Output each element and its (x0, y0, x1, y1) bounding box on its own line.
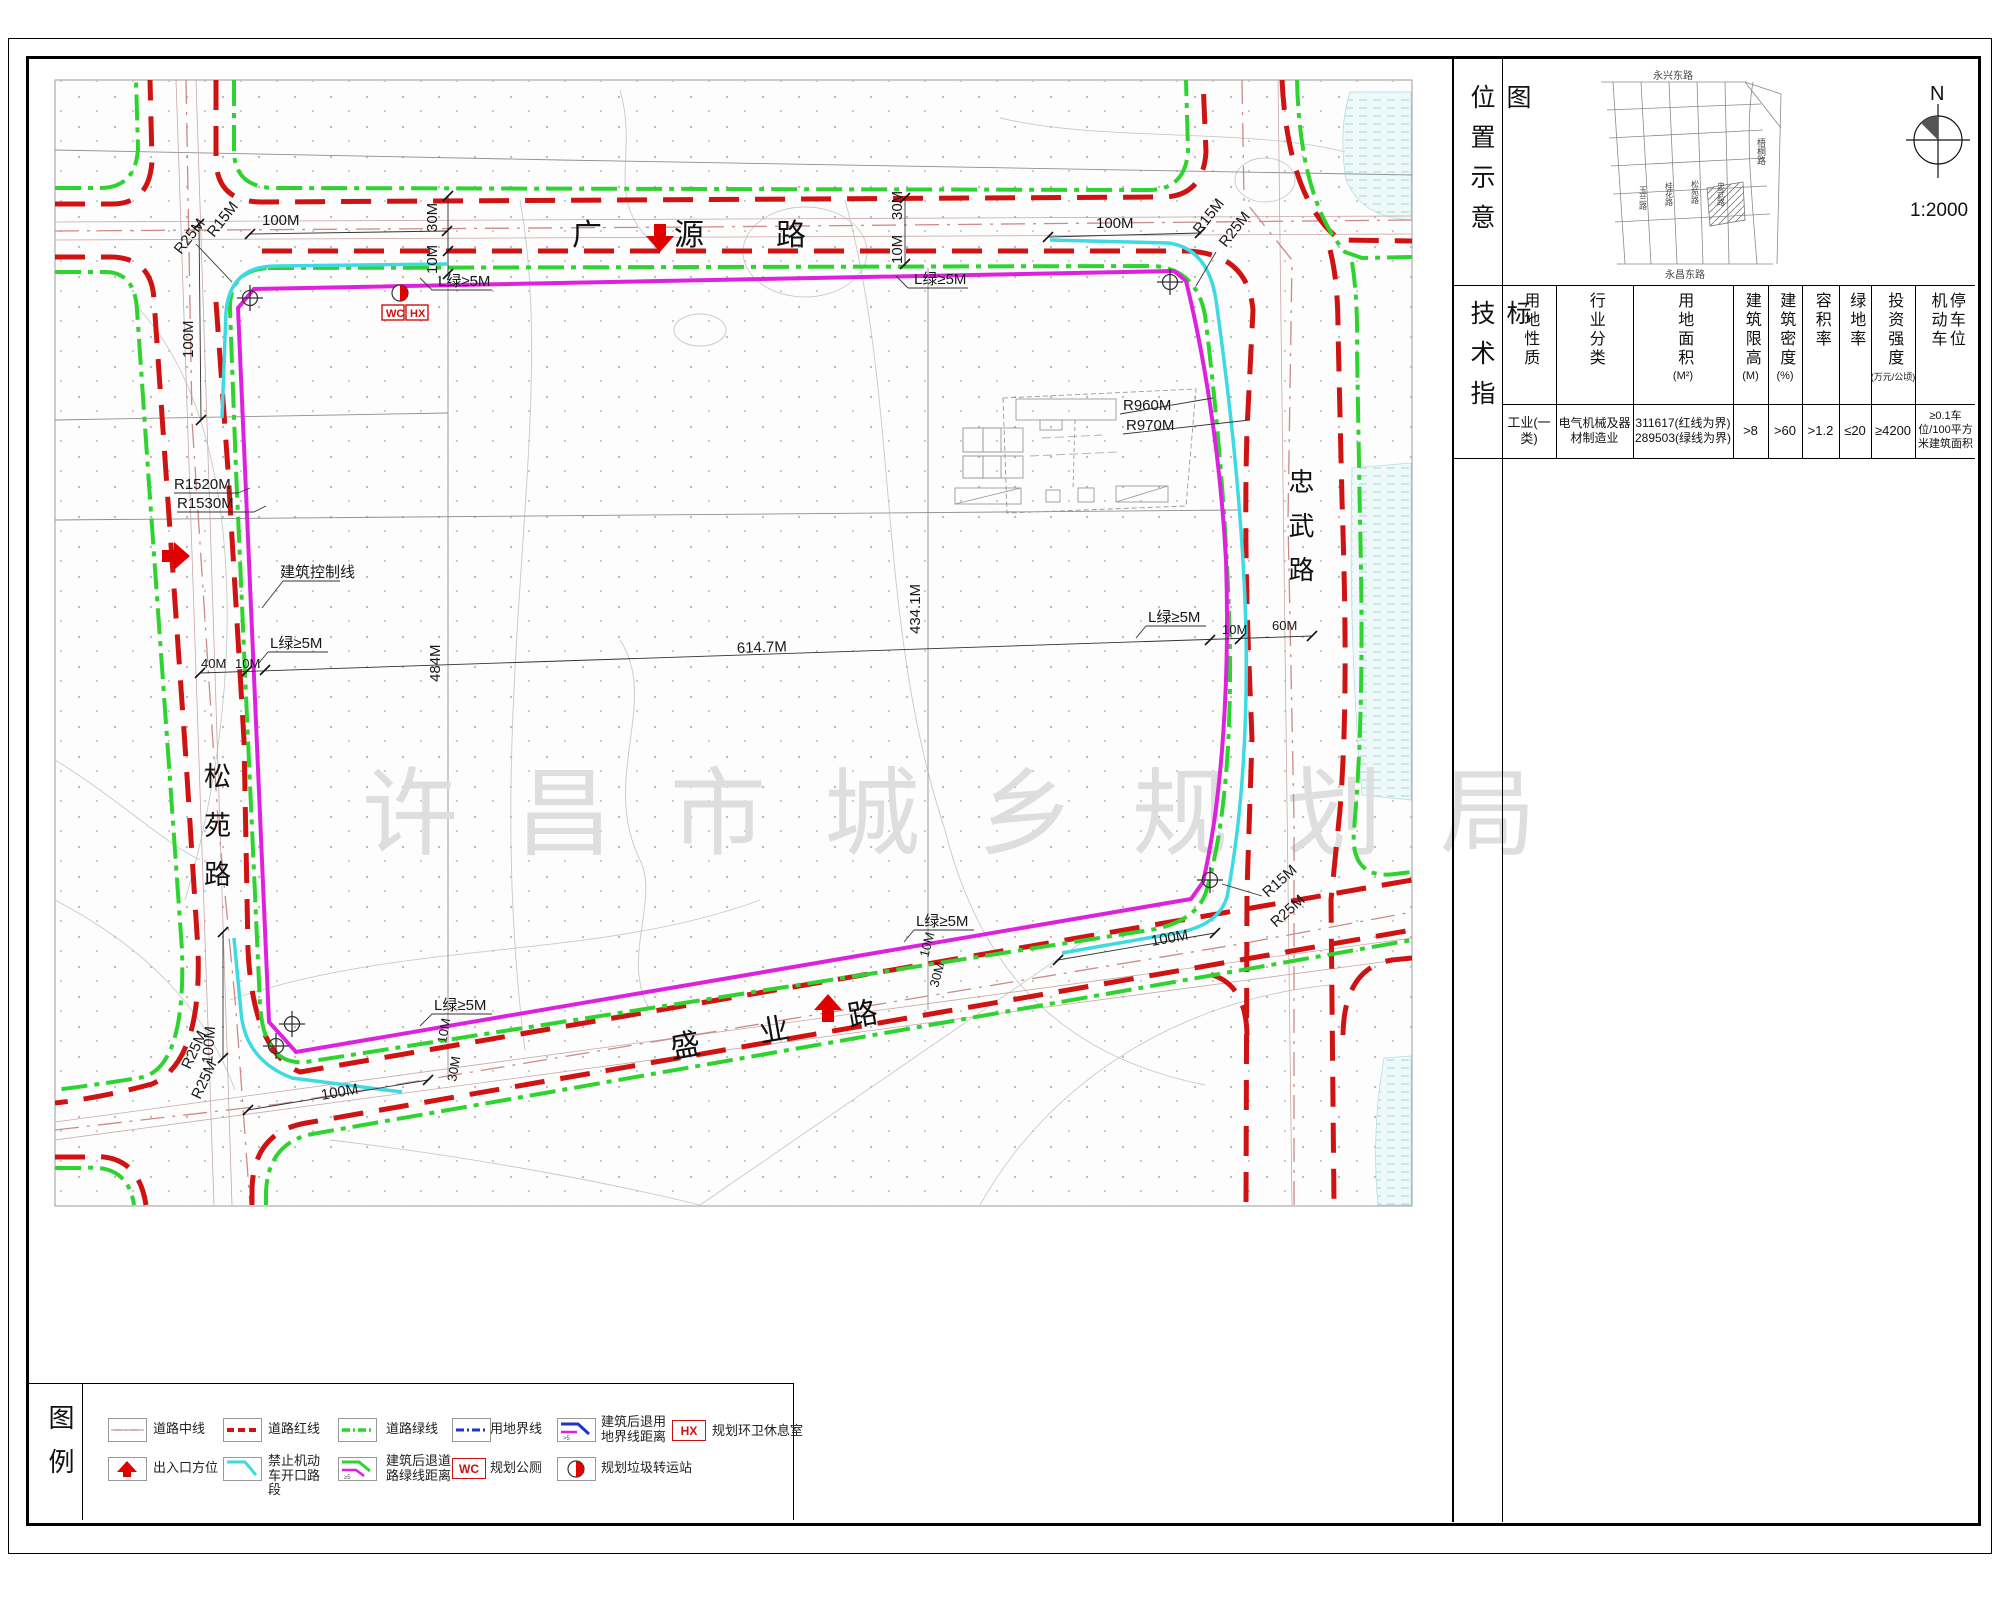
dim-label: R15M (204, 198, 242, 240)
th-height-limit: 建筑限高(M) (1734, 292, 1767, 402)
legend-item-label: 规划公厕 (490, 1461, 542, 1476)
dim-label: 10M (235, 656, 260, 671)
legend-right-border (793, 1383, 794, 1520)
legend-item-label: 出入口方位 (153, 1461, 218, 1476)
inset-road-label: 桂花路 (1665, 181, 1674, 206)
dim-label: L绿≥5M (916, 913, 968, 930)
td-height-limit: >8 (1734, 404, 1767, 458)
th-land-area: 用地面积(M²) (1634, 292, 1732, 402)
legend-item-label: 用地界线 (490, 1422, 542, 1437)
dim-label: L绿≥5M (434, 997, 486, 1014)
dim-label: R1520M (174, 476, 231, 493)
inset-road-label: 永昌东路 (1665, 268, 1705, 281)
legend-item-label: 道路绿线 (386, 1422, 438, 1437)
legend-top-border (26, 1383, 794, 1384)
dim-label: L绿≥5M (270, 635, 322, 652)
dim-label: 10M (889, 235, 906, 264)
th-industry: 行业分类 (1557, 292, 1632, 402)
plan-sheet: 许昌市城乡规划局 (0, 0, 2000, 1600)
land-boundary-icon (452, 1418, 491, 1442)
dim-label: 10M (1222, 622, 1247, 637)
north-compass: N 1:2000 (1902, 82, 1982, 232)
td-land-use: 工业(一类) (1503, 404, 1555, 458)
dim-label: L绿≥5M (438, 273, 490, 290)
legend-item-label: 规划环卫休息室 (712, 1424, 803, 1439)
wc-icon: WC (452, 1458, 486, 1479)
road-name-guangyuan: 广源路 (572, 210, 878, 254)
dim-label: L绿≥5M (1148, 609, 1200, 626)
entrance-arrow-icon (108, 1457, 147, 1481)
wc-text: WC (386, 308, 404, 320)
dim-label: 30M (424, 203, 441, 232)
panel-section-divider-2 (1452, 458, 1975, 459)
legend-item-label: 道路红线 (268, 1422, 320, 1437)
wc-hx-marks: WC HX (382, 285, 428, 320)
td-land-area: 311617(红线为界) 289503(绿线为界) (1634, 404, 1732, 458)
road-red-line-icon (223, 1418, 262, 1442)
inset-road-label: 梧桐路 (1756, 137, 1766, 166)
road-name-zhongwu: 忠武路 (1282, 468, 1319, 600)
dim-label: 60M (1272, 618, 1297, 633)
panel-left-border (1452, 56, 1454, 1522)
dim-label: 10M (916, 930, 937, 958)
dim-label: 10M (434, 1017, 453, 1045)
dim-label: 484M (427, 644, 444, 682)
dim-label: R970M (1126, 417, 1174, 434)
entrance-arrow-left (162, 542, 190, 570)
location-section-label: 位置示意图 (1463, 84, 1535, 274)
location-inset-map: 永兴东路 梧桐路 玉兰路 桂花路 松苑路 忠武路 永昌东路 (1595, 68, 1787, 283)
inset-road-label: 松苑路 (1691, 179, 1700, 204)
dim-label: 30M (889, 191, 906, 220)
td-density: >60 (1769, 404, 1801, 458)
no-opening-segments (222, 240, 1246, 1092)
td-investment: ≥4200 (1872, 404, 1914, 458)
th-investment: 投资强度(万元/公顷) (1872, 292, 1914, 402)
th-far: 容积率 (1803, 292, 1838, 402)
inset-parcel-hatch (1707, 182, 1745, 226)
dim-label: 10M (424, 245, 441, 274)
compass-quadrant (1921, 116, 1938, 140)
panel-label-divider (1502, 56, 1503, 1522)
dim-label: 30M (444, 1055, 463, 1083)
setback-from-boundary-icon: >5 (557, 1418, 596, 1442)
td-parking: ≥0.1车位/100平方米建筑面积 (1916, 402, 1975, 460)
legend-item-label: 规划垃圾转运站 (601, 1461, 692, 1476)
legend-item-label: 道路中线 (153, 1422, 205, 1437)
td-industry: 电气机械及器材制造业 (1557, 404, 1632, 458)
inset-road-label: 忠武路 (1717, 182, 1726, 206)
legend-title: 图例 (42, 1404, 79, 1504)
dim-label: 40M (201, 656, 226, 671)
dim-label: 100M (262, 212, 300, 229)
inset-road-label: 玉兰路 (1639, 186, 1648, 210)
dim-label: R1530M (177, 495, 234, 512)
dimension-labels: 100M 100M 100M R15M R25M 30M 10M L绿≥5M 3… (171, 191, 1309, 1104)
svg-text:>5: >5 (563, 1436, 571, 1441)
dim-label: 614.7M (737, 638, 788, 657)
dim-label: 100M (180, 320, 197, 358)
setback-from-greenline-icon: ≥5 (338, 1457, 377, 1481)
th-parking: 机动车停车位 (1916, 292, 1975, 402)
panel-section-divider-1 (1452, 285, 1975, 286)
svg-text:≥5: ≥5 (344, 1475, 351, 1480)
th-land-use: 用地性质 (1503, 292, 1555, 402)
no-opening-icon (223, 1457, 262, 1481)
inset-road-label: 永兴东路 (1653, 69, 1693, 82)
dim-label: 100M (1096, 215, 1134, 232)
road-green-line-icon (338, 1418, 377, 1442)
legend-item-label: 建筑后退道路绿线距离 (386, 1454, 452, 1483)
legend-label-divider (82, 1383, 83, 1520)
legend-item-label: 禁止机动车开口路段 (268, 1454, 332, 1498)
th-density: 建筑密度(%) (1769, 292, 1801, 402)
hx-text: HX (410, 308, 426, 320)
north-label: N (1930, 83, 1944, 105)
th-green-rate: 绿地率 (1840, 292, 1870, 402)
td-far: >1.2 (1803, 404, 1838, 458)
dim-label: 434.1M (907, 584, 924, 634)
scale-label: 1:2000 (1910, 200, 1968, 221)
td-green-rate: ≤20 (1840, 404, 1870, 458)
garbage-station-legend-icon (557, 1457, 596, 1481)
dim-label: 100M (320, 1081, 360, 1104)
legend-item-label: 建筑后退用地界线距离 (601, 1415, 667, 1444)
road-centerline-icon (108, 1418, 147, 1442)
control-line-label: 建筑控制线 (280, 564, 355, 581)
road-name-songyuan: 松苑路 (196, 762, 235, 909)
dim-label: R960M (1123, 397, 1171, 414)
dim-label: R25M (1216, 208, 1254, 250)
hx-icon: HX (672, 1420, 706, 1441)
building-control-line (238, 271, 1227, 1052)
dim-label: L绿≥5M (914, 271, 966, 288)
